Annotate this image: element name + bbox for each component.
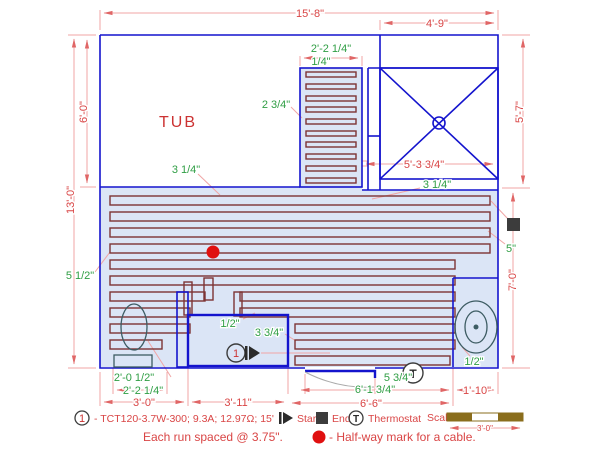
scale-bar	[447, 413, 523, 421]
legend-circuit-number: 1	[79, 413, 85, 425]
legend-thermostat-label: Thermostat	[368, 413, 421, 425]
legend-end: End	[316, 412, 351, 425]
offset-coil-strip-gap: 1/4"	[311, 56, 330, 68]
legend-circuit: 1 - TCT120-3.7W-300; 9.3A; 12.97Ω; 15'	[75, 411, 274, 425]
halfway-dot	[207, 246, 220, 259]
dim-overall-height: 13'-0"	[65, 186, 77, 214]
legend-end-icon	[316, 412, 328, 424]
dim-entry-width: 3'-11"	[224, 397, 251, 409]
legend-circuit-spec: - TCT120-3.7W-300; 9.3A; 12.97Ω; 15'	[94, 413, 274, 425]
offset-door-gap: 5 3/4"	[384, 372, 412, 384]
offset-door-span: 6'-1 3/4"	[355, 384, 395, 396]
start-circuit-number: 1	[233, 348, 239, 360]
legend-start-label: Start	[297, 413, 319, 425]
heated-strip-fill	[300, 68, 362, 188]
start-marker-bar	[245, 346, 248, 360]
dim-vanity-width: 1'-10"	[463, 385, 491, 397]
legend-start-icon	[283, 412, 293, 424]
legend-thermostat-letter: T	[353, 414, 359, 425]
offset-coil-top-gap: 2 3/4"	[262, 99, 290, 111]
dim-shower-drain: 5'-3 3/4"	[404, 159, 444, 171]
dim-overall-width: 15'-8"	[296, 8, 324, 20]
legend-start-bar	[279, 412, 282, 424]
legend-thermostat: T Thermostat	[349, 411, 421, 425]
offset-toilet-side: 2'-0 1/2"	[114, 372, 154, 384]
offset-entry-gap: 1/2"	[220, 318, 239, 330]
offset-shower-edge-gap: 3 1/4"	[423, 179, 451, 191]
dim-bottom-span: 6'-6"	[360, 398, 382, 410]
offset-right-end-gap: 5"	[506, 243, 516, 255]
legend-start: Start	[279, 412, 319, 425]
dim-right-depth: 7'-0"	[507, 269, 519, 291]
note-spacing: Each run spaced @ 3.75".	[143, 430, 283, 444]
dim-tub-depth: 6'-0"	[78, 101, 90, 123]
offset-toilet-center: 2'-2 1/4"	[123, 385, 163, 397]
offset-vanity-gap: 1/2"	[464, 356, 483, 368]
legend-notes: Each run spaced @ 3.75". - Half-way mark…	[143, 430, 476, 444]
dim-toilet-bay: 3'-0"	[133, 397, 155, 409]
offset-tub-edge-gap: 3 1/4"	[172, 164, 200, 176]
dim-shower-width: 4'-9"	[426, 18, 448, 30]
legend-end-label: End	[332, 413, 351, 425]
offset-left-edge-gap: 5 1/2"	[66, 270, 94, 282]
heated-area-fill	[100, 68, 498, 367]
legend-halfway-dot-icon	[313, 431, 326, 444]
tub-label: TUB	[159, 114, 197, 131]
heating-plan-page: 1 T 15'-8" 4'-9" 13'-0" 6'-0" 5'-7" 7'-0…	[0, 0, 600, 450]
legend: 1 - TCT120-3.7W-300; 9.3A; 12.97Ω; 15' S…	[75, 411, 523, 444]
legend-scale-length: 3'-0"	[477, 424, 493, 433]
offset-coil-strip-width: 2'-2 1/4"	[311, 43, 351, 55]
note-halfway: - Half-way mark for a cable.	[329, 430, 476, 444]
floor-plan-drawing: 1 T 15'-8" 4'-9" 13'-0" 6'-0" 5'-7" 7'-0…	[0, 0, 600, 450]
offset-entry-end-gap: 3 3/4"	[255, 327, 283, 339]
end-marker-icon	[507, 218, 520, 231]
dim-shower-side: 5'-7"	[514, 101, 526, 123]
